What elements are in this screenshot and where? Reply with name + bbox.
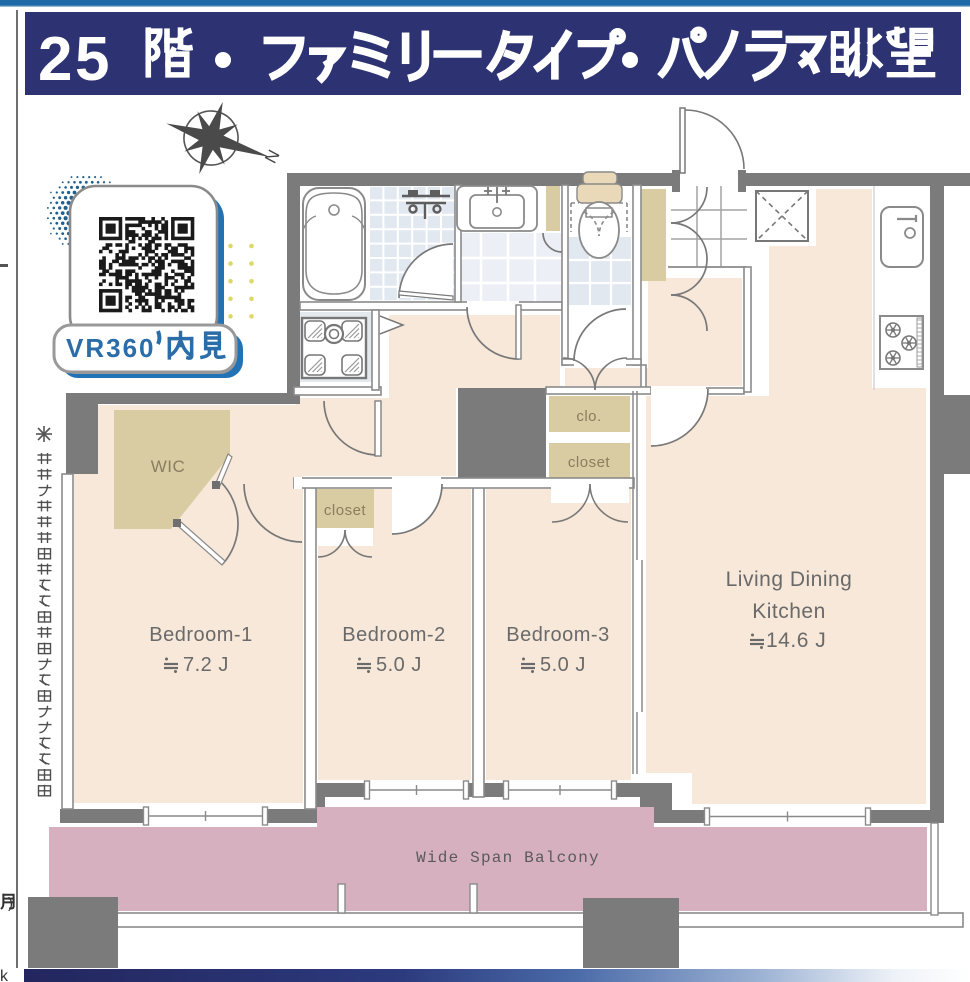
svg-text:5.0 J: 5.0 J [376, 654, 422, 676]
svg-text:Bedroom-3: Bedroom-3 [506, 624, 609, 646]
svg-text:Kitchen: Kitchen [752, 600, 826, 623]
svg-text:Bedroom-2: Bedroom-2 [342, 624, 445, 646]
svg-text:5.0 J: 5.0 J [540, 654, 586, 676]
svg-text:): ) [8, 895, 13, 912]
svg-text:Bedroom-1: Bedroom-1 [149, 624, 252, 646]
svg-text:7.2 J: 7.2 J [183, 654, 229, 676]
svg-text:25: 25 [38, 25, 112, 94]
svg-text:14.6 J: 14.6 J [766, 629, 826, 652]
svg-text:k: k [0, 968, 9, 982]
svg-text:WIC: WIC [151, 457, 186, 476]
svg-text:Living Dining: Living Dining [726, 568, 853, 591]
svg-text:VR360: VR360 [66, 333, 156, 363]
svg-text:closet: closet [568, 454, 611, 471]
svg-text:clo.: clo. [576, 408, 601, 425]
svg-text:Wide Span Balcony: Wide Span Balcony [416, 849, 600, 867]
svg-text:closet: closet [324, 502, 367, 519]
